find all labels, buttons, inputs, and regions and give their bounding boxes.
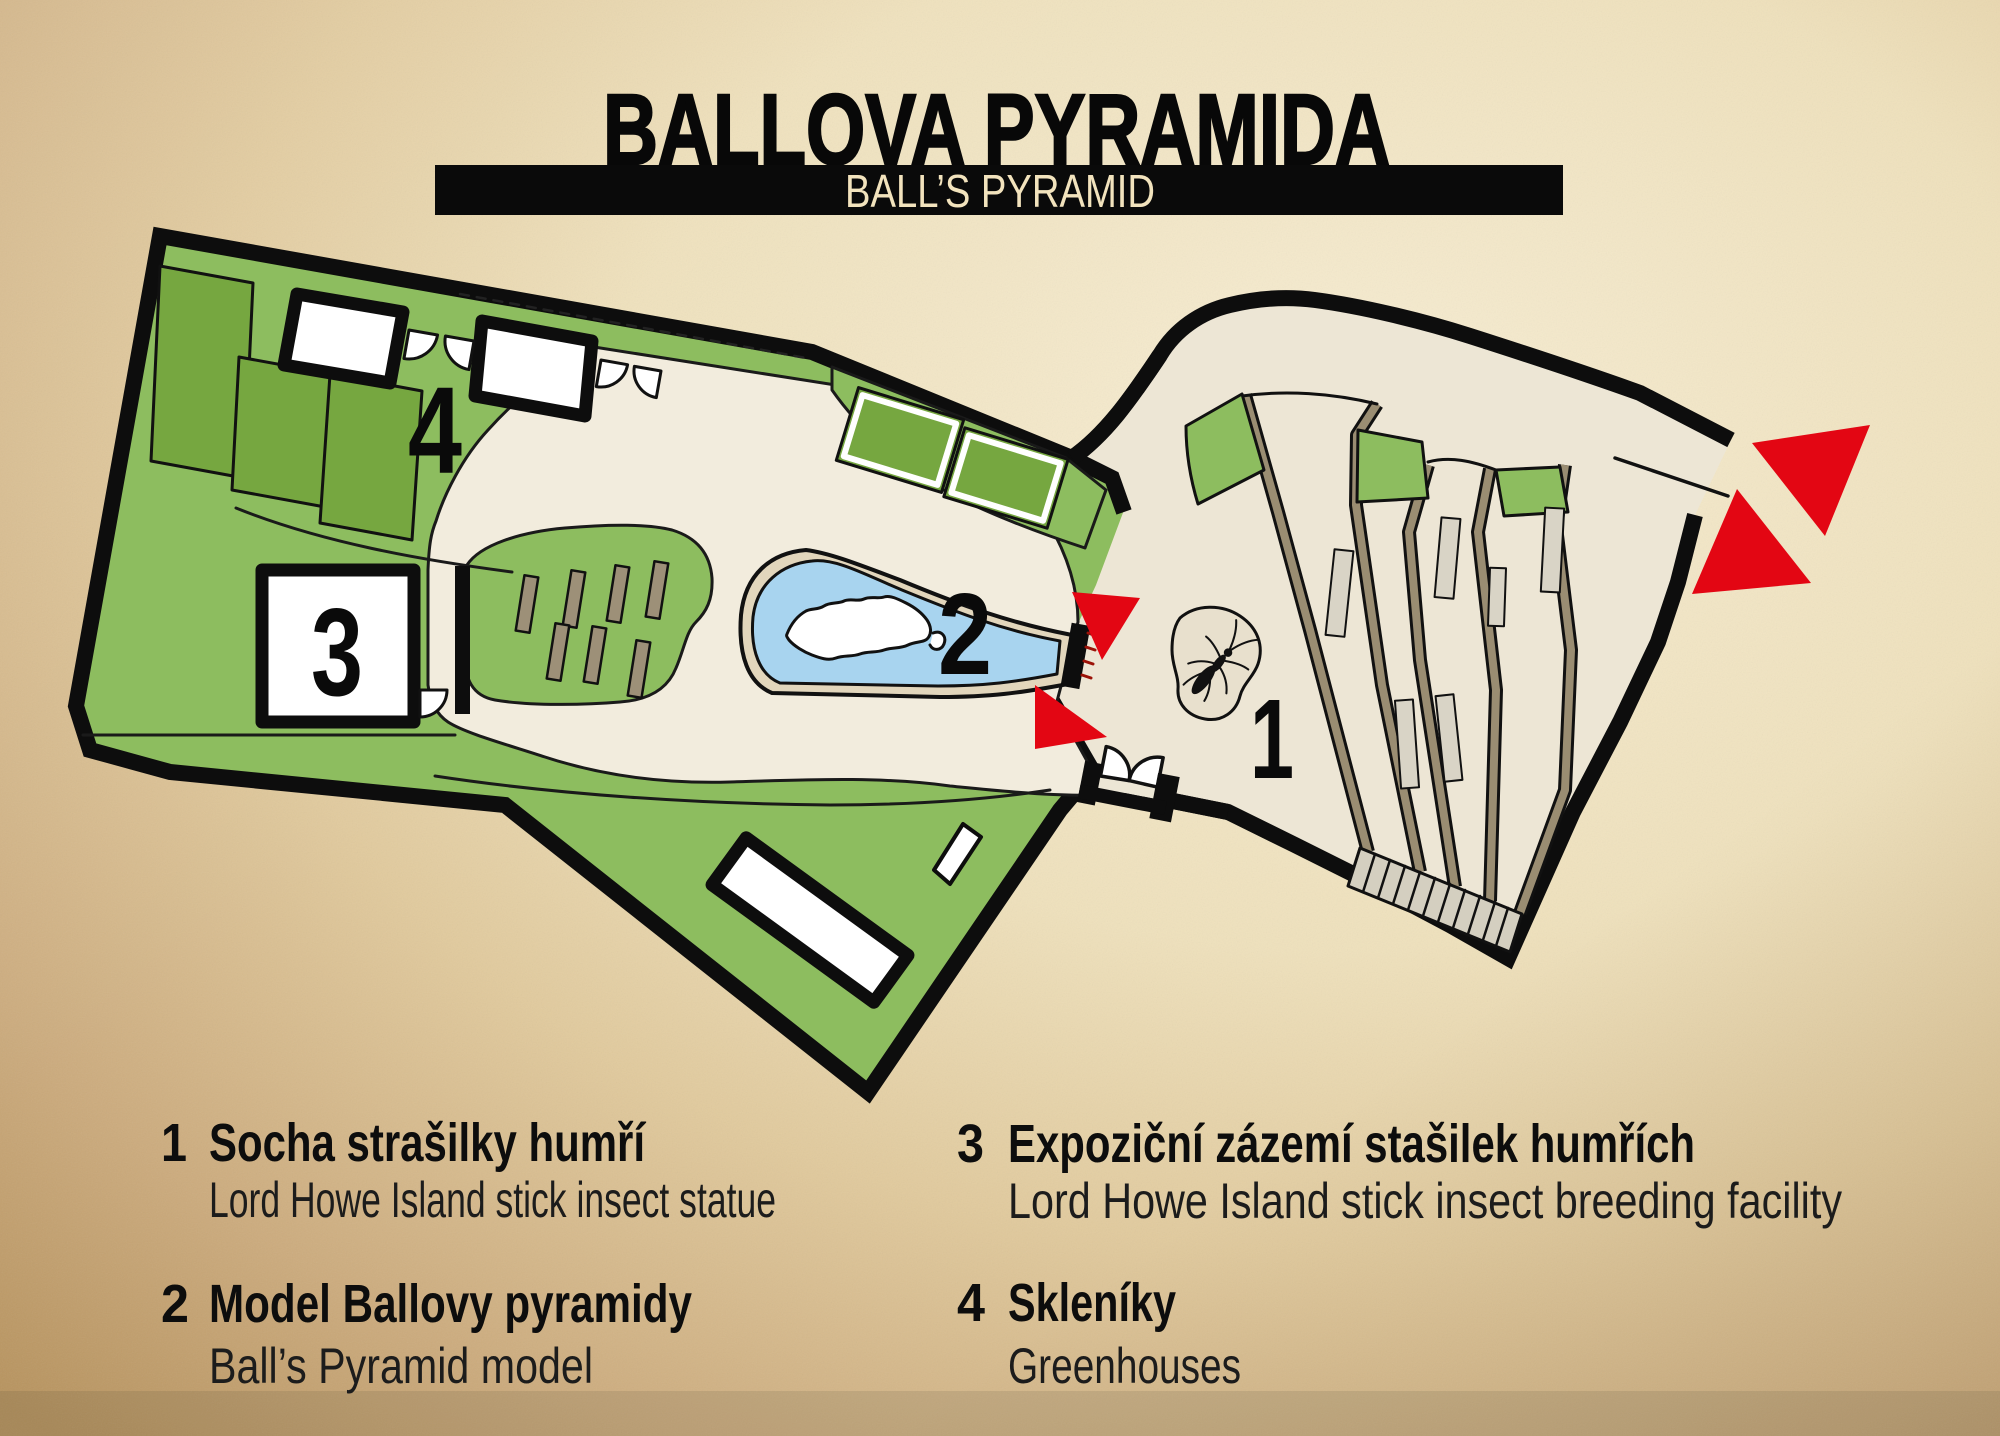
svg-text:2: 2 <box>938 569 992 699</box>
svg-text:Lord Howe Island stick insect: Lord Howe Island stick insect statue <box>209 1172 776 1228</box>
svg-text:1: 1 <box>1250 676 1294 802</box>
svg-text:BALL’S PYRAMID: BALL’S PYRAMID <box>845 165 1155 217</box>
svg-text:2: 2 <box>161 1274 189 1334</box>
svg-text:Skleníky: Skleníky <box>1008 1273 1176 1333</box>
svg-text:Model Ballovy pyramidy: Model Ballovy pyramidy <box>209 1274 692 1334</box>
svg-text:Socha strašilky humří: Socha strašilky humří <box>209 1113 647 1173</box>
svg-text:3: 3 <box>957 1114 984 1174</box>
svg-text:Greenhouses: Greenhouses <box>1008 1338 1241 1394</box>
svg-text:3: 3 <box>311 584 363 722</box>
svg-text:1: 1 <box>161 1113 187 1173</box>
svg-text:Lord Howe Island stick insect: Lord Howe Island stick insect breeding f… <box>1008 1173 1842 1229</box>
svg-text:4: 4 <box>957 1273 985 1333</box>
svg-text:Ball’s Pyramid model: Ball’s Pyramid model <box>209 1338 593 1394</box>
svg-text:4: 4 <box>408 363 462 500</box>
svg-text:Expoziční zázemí stašilek humř: Expoziční zázemí stašilek humřích <box>1008 1114 1695 1174</box>
